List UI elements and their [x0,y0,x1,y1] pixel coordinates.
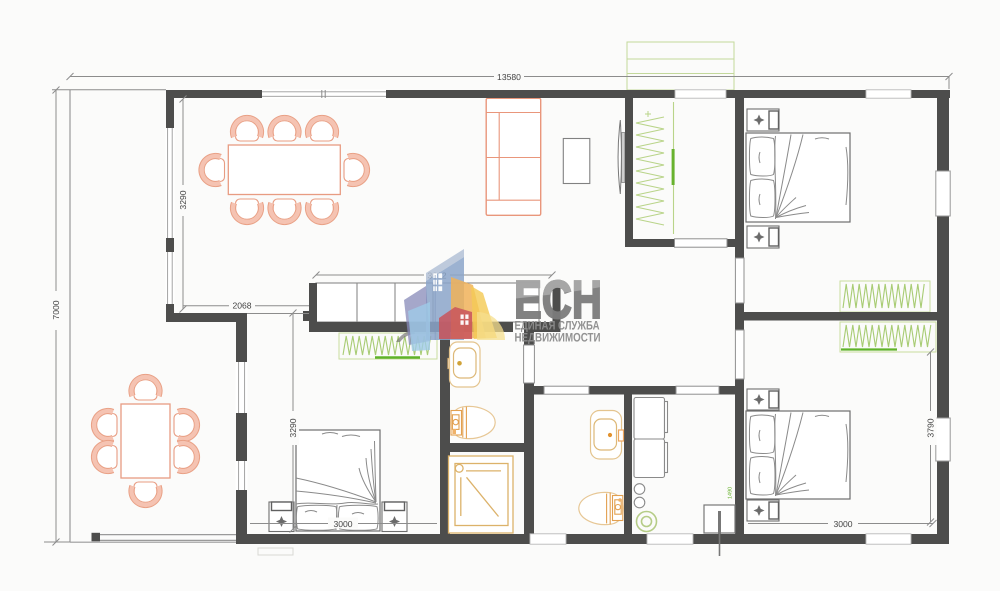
svg-text:НЕДВИЖИМОСТИ: НЕДВИЖИМОСТИ [515,331,601,345]
svg-text:1490: 1490 [728,487,734,499]
svg-text:2068: 2068 [232,301,251,311]
svg-text:13580: 13580 [497,72,521,82]
svg-text:3290: 3290 [178,190,188,209]
svg-text:3290: 3290 [288,418,298,437]
svg-text:7000: 7000 [51,300,61,319]
svg-text:3000: 3000 [833,519,852,529]
svg-text:3790: 3790 [926,418,936,437]
svg-text:3000: 3000 [333,519,352,529]
